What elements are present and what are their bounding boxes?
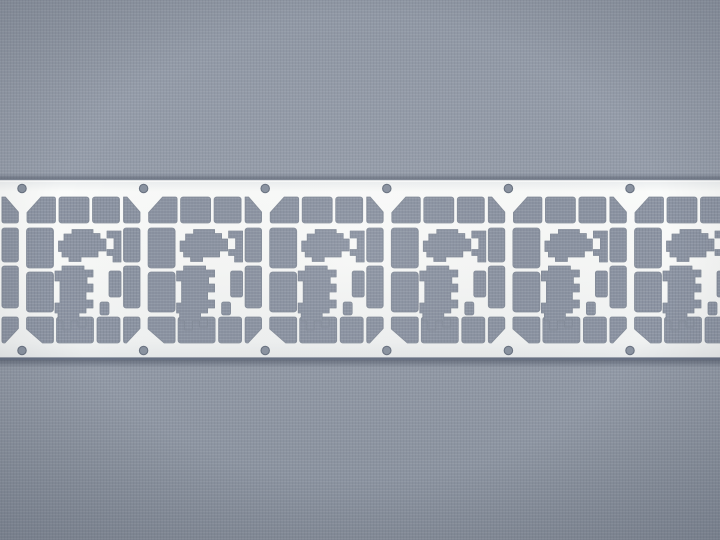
vignette-overlay (0, 0, 720, 540)
leadframe-photo (0, 0, 720, 540)
photo-stage (0, 0, 720, 540)
